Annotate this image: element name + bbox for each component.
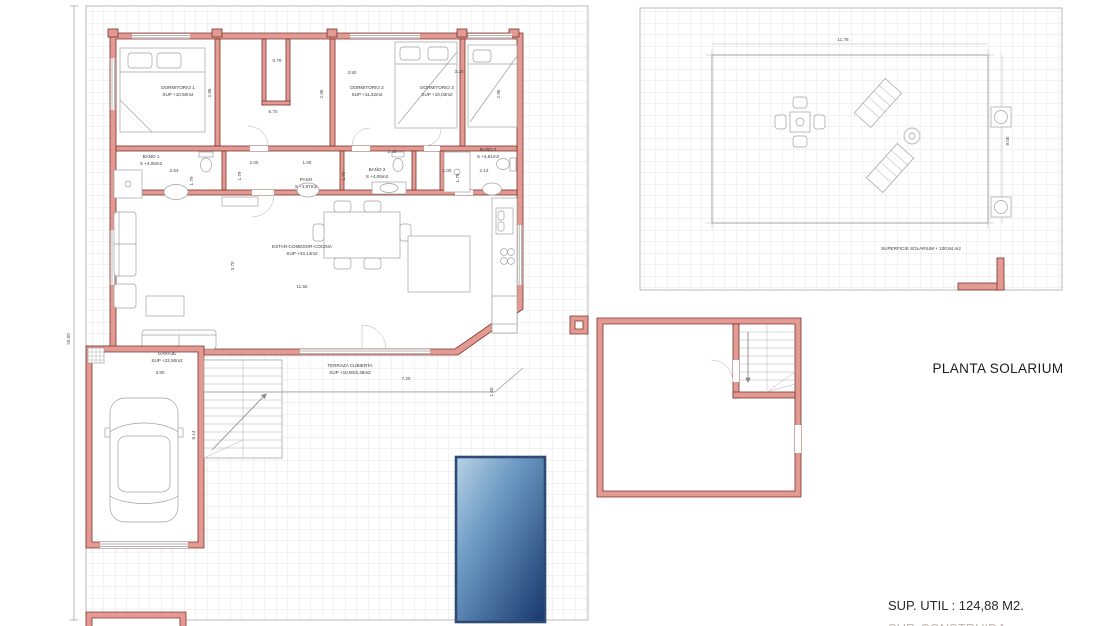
bulkhead-floor	[597, 318, 801, 497]
room-area-dorm2: SUP +11,32m2	[352, 92, 383, 97]
dim-295a: 2.95	[319, 89, 324, 98]
dim-200: 2.00	[250, 160, 259, 165]
house	[108, 29, 523, 355]
room-area-dorm1: SUP +10,50m2	[162, 92, 194, 97]
dim-370: 3.70	[230, 261, 235, 270]
exterior-stairs	[204, 360, 282, 458]
room-label-bano2: BAÑO 2	[369, 166, 386, 172]
dim-670: 6.70	[269, 109, 278, 114]
room-area-estar: SUP +43,14m2	[286, 251, 318, 256]
dim-380: 3.80	[156, 370, 165, 375]
solarium-surface-label: SUPERFICIE SOLARIUM + 100,84 m2	[881, 246, 961, 251]
room-area-paso: S +1,97m2	[295, 184, 318, 189]
dim-296: 2.96	[207, 88, 212, 97]
dim-179a: 1.79	[189, 176, 194, 185]
dim-070: 0.70	[273, 58, 282, 63]
partial-structure	[86, 612, 186, 626]
room-area-dorm3: SUP +10,03m2	[421, 92, 453, 97]
dim-100a: 1.00	[303, 160, 312, 165]
stair-bulkhead	[570, 316, 801, 497]
sup-util-text: SUP. UTIL : 124,88 M2.	[888, 598, 1024, 613]
garage	[86, 346, 204, 548]
skylight-1	[991, 107, 1011, 127]
room-area-terraza: SUP +10,90/5,45m2	[329, 370, 371, 375]
dim-263: 2.63	[170, 168, 179, 173]
room-label-garaje: GARAJE	[158, 351, 176, 356]
dim-100b: 1.00	[443, 168, 452, 173]
bed-dorm3	[468, 45, 517, 127]
stairwell-door-opening	[733, 360, 739, 382]
room-area-bano2: S +4,06m2	[366, 174, 389, 179]
solarium-plot: 11.78 9.00 SUPERFICIE	[640, 8, 1062, 290]
side-table	[904, 128, 920, 144]
room-label-estar: ESTAR-COMEDOR-COCINA	[272, 244, 333, 249]
dim-179c: 1.79	[341, 171, 346, 180]
dim-720: 7.20	[402, 376, 411, 381]
solarium-paving-grid	[640, 8, 1062, 290]
bed-dorm1	[120, 48, 205, 132]
dim-614: 6.14	[191, 430, 196, 439]
dim-350: 3.50	[348, 70, 357, 75]
room-label-paso: PASO	[300, 177, 313, 182]
room-label-terraza: TERRAZA CUBIERTA	[327, 363, 373, 368]
dim-1155: 11.55	[296, 284, 308, 289]
dim-1178: 11.78	[837, 37, 849, 42]
dim-213: 2.13	[480, 168, 489, 173]
room-area-bano1: S +4,05m2	[140, 161, 163, 166]
dim-295b: 2.95	[496, 89, 501, 98]
room-label-bano3: BAÑO 3	[480, 146, 497, 152]
dim-179b: 1.79	[237, 171, 242, 180]
plan-drawing: 20.00	[0, 0, 1110, 626]
dim-320: 3.20	[455, 69, 464, 74]
car	[105, 398, 183, 522]
room-label-dorm2: DORMITORIO 2	[350, 85, 384, 90]
swimming-pool	[456, 457, 545, 622]
plot-height-dim: 20.00	[66, 333, 71, 345]
dim-179d: 1.79	[455, 173, 460, 182]
bulkhead-door-opening	[795, 425, 801, 453]
dim-240: 2.40	[388, 149, 397, 154]
room-area-bano3: S +4,81m2	[477, 154, 500, 159]
dim-900: 9.00	[1005, 136, 1010, 145]
garage-door-opening	[100, 542, 188, 548]
floor-plan-sheet: 20.00	[0, 0, 1110, 626]
dim-160: 1.60	[489, 387, 494, 396]
sup-construida-text: SUP. CONSTRUIDA :	[888, 621, 1013, 626]
room-label-dorm3: DORMITORIO 3	[420, 85, 454, 90]
solarium-plan-title: PLANTA SOLARIUM	[932, 361, 1063, 376]
utility-hatch	[88, 348, 104, 363]
room-label-dorm1: DORMITORIO 1	[161, 85, 195, 90]
skylight-2	[991, 197, 1011, 217]
room-area-garaje: SUP +22,50m2	[151, 358, 183, 363]
room-label-bano1: BAÑO 1	[143, 153, 160, 159]
